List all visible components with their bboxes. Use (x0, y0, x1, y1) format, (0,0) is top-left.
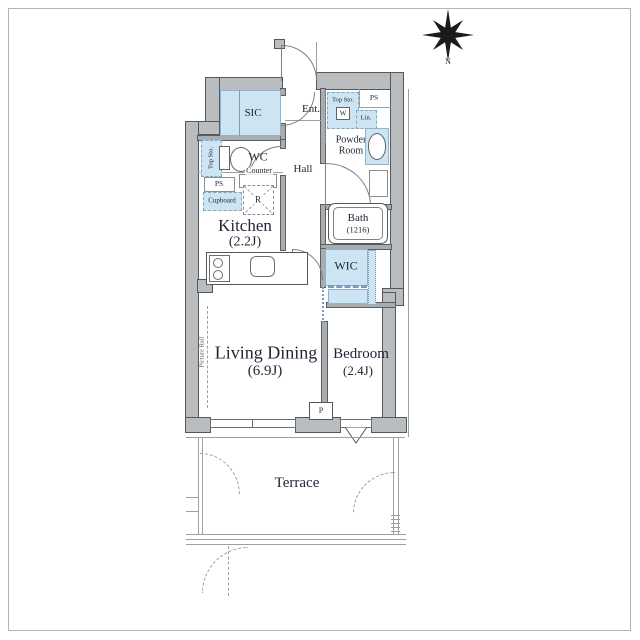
alcove-side-line (316, 42, 317, 73)
wic-label: WIC (334, 260, 357, 273)
pillar-label: P (319, 407, 323, 415)
wall-segment (186, 122, 198, 432)
kitchen-label: Kitchen (218, 217, 272, 235)
stove-burner (213, 258, 223, 268)
wic-hanger-strip (368, 250, 376, 305)
terrace-edge-line (186, 437, 405, 438)
partition-hatch (391, 527, 400, 528)
compass-rose-icon (421, 8, 475, 62)
wall-segment (372, 418, 406, 432)
refrigerator-label: R (253, 195, 263, 204)
wall-segment (296, 418, 340, 432)
wc-counter-label: Counter (245, 167, 273, 175)
washroom-cabinet (369, 170, 388, 197)
hall-label: Hall (294, 164, 313, 176)
living-window (210, 419, 296, 428)
terrace-edge-line (398, 437, 399, 535)
stove-burner (213, 270, 223, 280)
bedroom-size-label: (2.4J) (343, 364, 373, 378)
bath-size-label: (1216) (347, 226, 370, 235)
wic-extension (328, 289, 368, 304)
terrace-edge-line (198, 437, 199, 535)
living-dining-size-label: (6.9J) (248, 364, 283, 380)
kitchen-sink (250, 256, 275, 277)
terrace-edge-line (186, 534, 406, 535)
bedroom-label: Bedroom (333, 347, 389, 363)
terrace-label: Terrace (275, 476, 320, 492)
partition-hatch (391, 523, 400, 524)
terrace-edge-line (186, 544, 406, 545)
picture-rail-label: Picture Rail (199, 337, 206, 368)
terrace-edge-line (186, 539, 406, 540)
toilet-tank (219, 146, 230, 170)
wall-segment (281, 176, 285, 250)
sic-shelf-line (239, 90, 240, 136)
wc-top-storage-label: Top Sto. (208, 147, 215, 169)
kitchen-size-label: (2.2J) (229, 236, 261, 251)
partition-hatch (391, 531, 400, 532)
wall-segment (206, 78, 219, 128)
ps-divider-line (359, 89, 360, 108)
living-dining-label: Living Dining (215, 344, 318, 363)
entrance-label: Ent. (302, 104, 320, 116)
terrace-step-marker (345, 427, 367, 444)
terrace-step-line (186, 497, 198, 498)
cupboard-label: Cupboard (208, 197, 236, 204)
sic-label: SIC (244, 108, 261, 120)
outer-boundary-line (408, 89, 409, 437)
wall-segment (186, 418, 210, 432)
partition-hatch (391, 515, 400, 516)
bath-label: Bath (348, 213, 369, 225)
vanity-basin (368, 133, 386, 160)
compass-north-label: N (445, 58, 451, 66)
wic-sliding-door (328, 285, 367, 288)
wc-label: WC (248, 151, 267, 164)
ps-top-label: PS (370, 94, 378, 102)
window-mullion (252, 419, 253, 428)
picture-rail-line (207, 306, 208, 408)
ps-kitchen-label: PS (215, 180, 223, 188)
partition-hatch (391, 519, 400, 520)
sliding-door-dotted (322, 287, 325, 323)
terrace-step-line (186, 511, 198, 512)
wall-segment (321, 205, 325, 249)
page-border (8, 8, 631, 631)
washer-label: W (340, 110, 347, 117)
ps-divider-line (359, 107, 391, 108)
wall-segment (281, 140, 285, 148)
entry-top-storage-label: Top Sto. (332, 98, 354, 105)
wall-segment (281, 124, 285, 140)
wall-segment (391, 73, 403, 293)
floor-plan: N SIC Ent. Top Sto. (0, 0, 640, 640)
linen-label: Lin. (361, 116, 372, 123)
wall-segment (322, 322, 327, 403)
